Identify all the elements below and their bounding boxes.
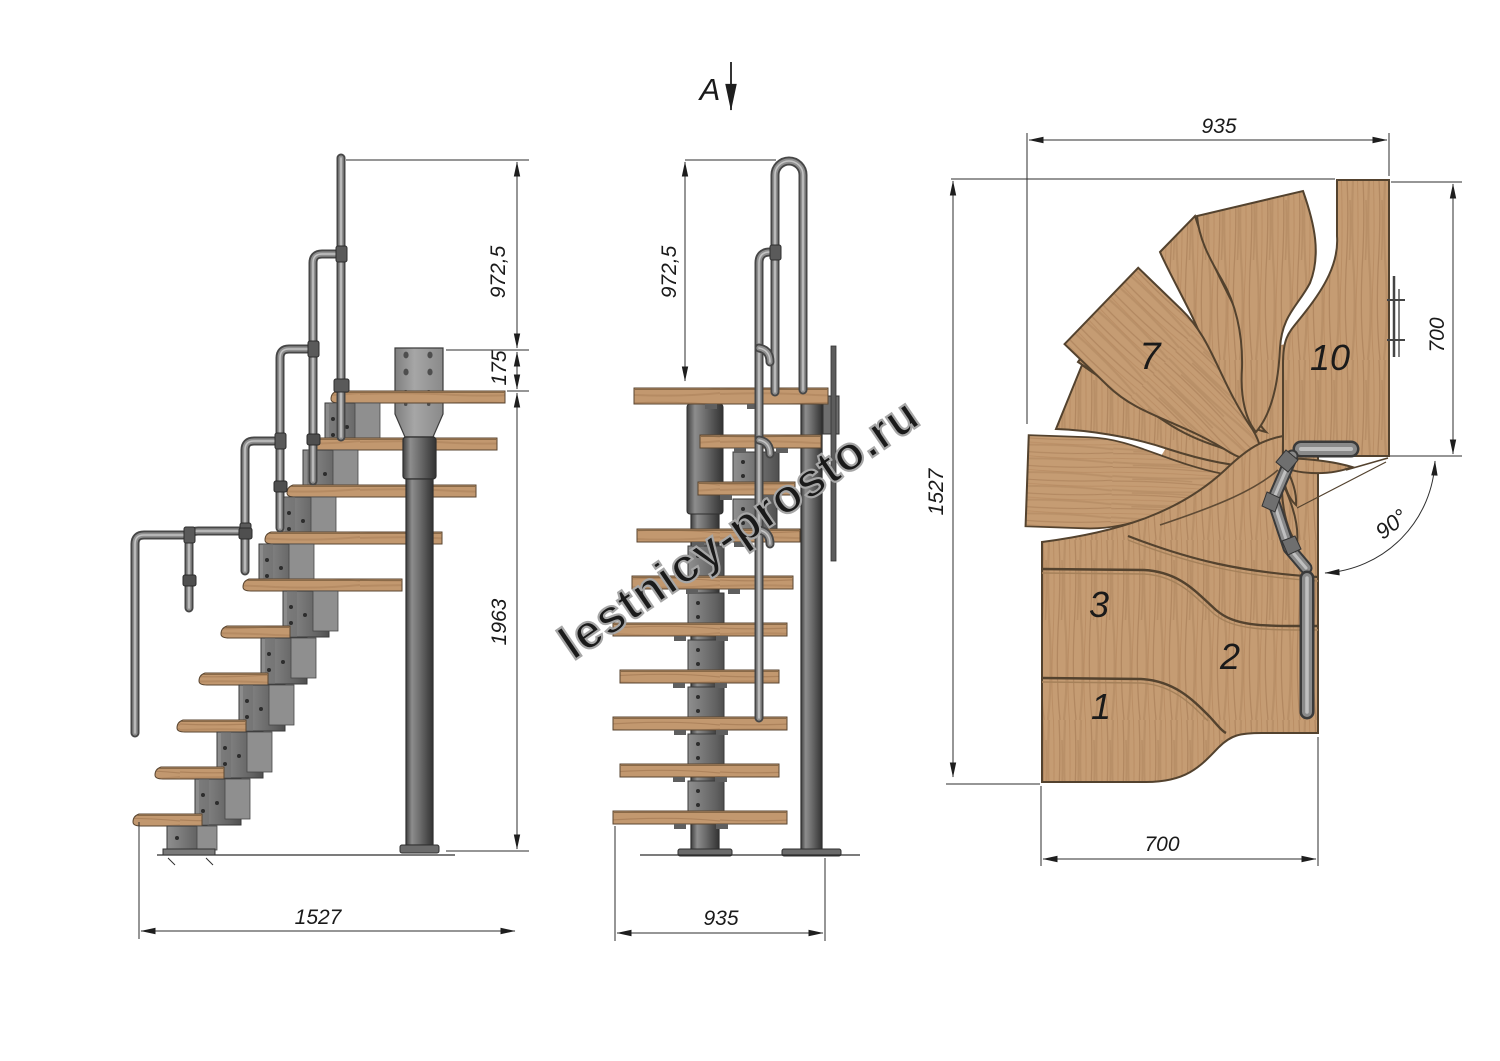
svg-text:1963: 1963 <box>488 598 511 645</box>
svg-text:935: 935 <box>703 907 738 930</box>
svg-text:7: 7 <box>1139 336 1162 378</box>
svg-text:700: 700 <box>1144 833 1179 856</box>
svg-text:700: 700 <box>1426 317 1449 352</box>
svg-text:1527: 1527 <box>295 906 343 929</box>
svg-text:2: 2 <box>1219 636 1240 677</box>
svg-text:10: 10 <box>1310 337 1350 378</box>
svg-text:935: 935 <box>1201 115 1236 138</box>
svg-text:1527: 1527 <box>925 467 948 515</box>
svg-text:972,5: 972,5 <box>487 245 510 298</box>
svg-text:1: 1 <box>1091 686 1111 727</box>
svg-text:3: 3 <box>1089 584 1109 625</box>
svg-text:972,5: 972,5 <box>658 245 681 298</box>
svg-text:A: A <box>698 72 721 107</box>
svg-text:175: 175 <box>488 350 511 385</box>
